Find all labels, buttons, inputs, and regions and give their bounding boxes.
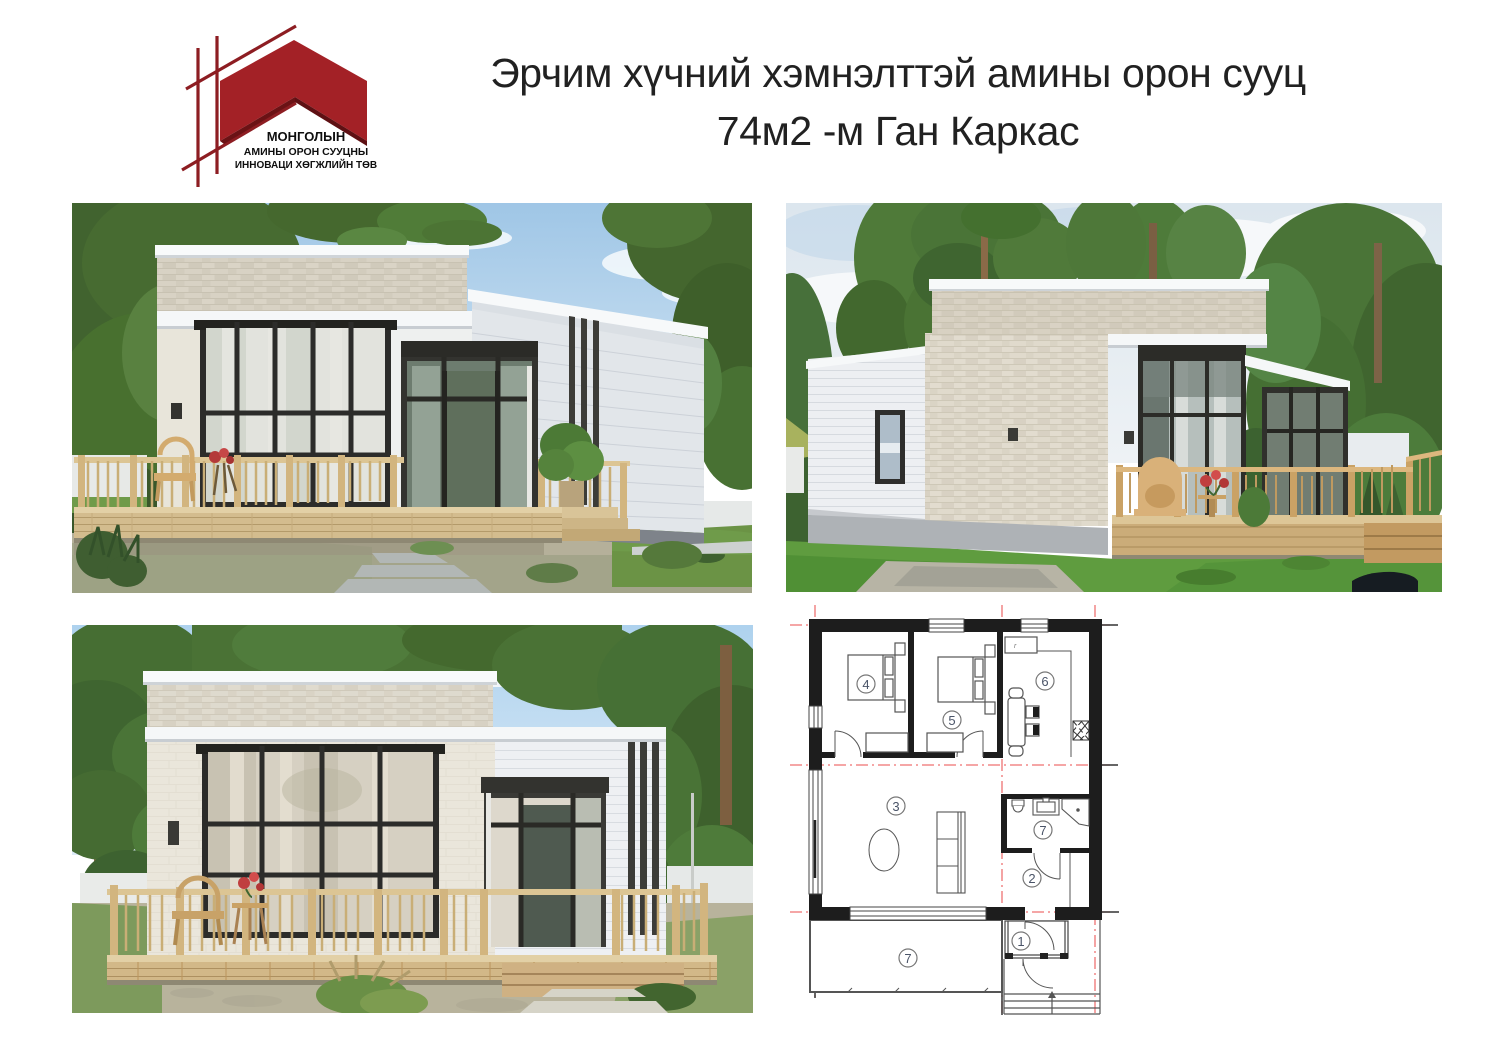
svg-text:2: 2 (1028, 871, 1035, 886)
svg-text:МОНГОЛЫН: МОНГОЛЫН (267, 129, 346, 144)
svg-text:7: 7 (904, 951, 911, 966)
svg-text:4: 4 (862, 677, 869, 692)
svg-text:3: 3 (892, 799, 899, 814)
svg-text:1: 1 (1017, 934, 1024, 949)
svg-text:6: 6 (1041, 674, 1048, 689)
svg-text:7: 7 (1039, 823, 1046, 838)
svg-text:5: 5 (948, 713, 955, 728)
svg-text:ИННОВАЦИ ХӨГЖЛИЙН ТӨВ: ИННОВАЦИ ХӨГЖЛИЙН ТӨВ (235, 158, 377, 171)
svg-text:АМИНЫ ОРОН СУУЦНЫ: АМИНЫ ОРОН СУУЦНЫ (244, 146, 368, 158)
